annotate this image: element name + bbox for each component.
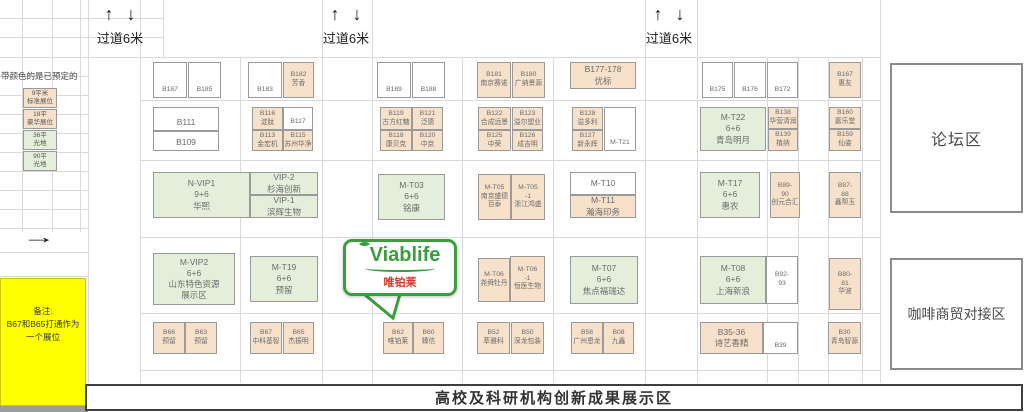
booth-n-vip1: N-VIP19+6华熙 <box>153 172 250 218</box>
booth-vip-2: VIP-2杉海创新 <box>250 172 318 195</box>
down-arrow-icon: ↓ <box>353 4 362 24</box>
booth-b126: B126成吉明 <box>512 130 543 151</box>
booth-b60: B60臻信 <box>413 322 444 354</box>
booth-b109: B109 <box>153 131 219 151</box>
legend-sample-2: 18平豪华展位 <box>23 109 57 129</box>
booth-b58: B58广州恩龙 <box>571 322 603 354</box>
aisle-label-2: ↑↓过道6米 <box>318 4 374 54</box>
right-arrow-glyph-icon: → <box>22 227 56 248</box>
booth-b180: B180广纳景源 <box>512 62 545 98</box>
booth-b121: B121泛德 <box>412 107 443 130</box>
down-arrow-icon: ↓ <box>676 4 685 24</box>
note-box: 备注:B67和B65打通作为一个展位 <box>0 278 86 406</box>
logo-brand-word: Viablife <box>370 245 441 265</box>
booth-b175: B175 <box>702 62 733 98</box>
logo-brand-text: Viablife <box>360 245 441 265</box>
booth-m-t11: M-T11瀚海印务 <box>570 195 636 218</box>
booth-b115: B115苏州华净 <box>283 130 313 151</box>
booth-b185: B185 <box>188 62 221 98</box>
booth-b52: B52萃雅科 <box>477 322 510 354</box>
booth-b08: B08九鑫 <box>603 322 634 354</box>
bottom-left-strip <box>0 406 88 412</box>
booth-b113: B113金宏机 <box>252 130 283 151</box>
booth-b125: B125中荣 <box>478 130 511 151</box>
booth-b160: B160嘉乐堂 <box>829 107 861 129</box>
booth-b67: B67中科基智 <box>250 322 282 354</box>
booth-b92-93: B92-93 <box>766 256 798 304</box>
booth-b122: B122合成远景 <box>478 107 511 130</box>
booth-m-vip2: M-VIP26+6山东特色资源展示区 <box>153 253 235 305</box>
booth-b139: B139植纳 <box>768 129 798 151</box>
aisle-label-text: 过道6米 <box>323 28 369 47</box>
booth-b138: B138华营清润 <box>768 107 798 129</box>
exhibition-floor-plan: 带颜色的是已预定的 9平米标准展位18平豪华展位36平光地90平光地 → 备注:… <box>0 0 1024 412</box>
booth-b187: B187 <box>153 62 187 98</box>
booth-b111: B111 <box>153 107 219 131</box>
bottom-banner-label: 高校及科研机构创新成果展示区 <box>435 387 673 408</box>
note-line: 一个展位 <box>1 331 85 344</box>
booth-b182: B182芳香 <box>283 62 314 98</box>
booth-b66: B66预留 <box>153 322 185 354</box>
booth-b35-36: B35-36诗艺香精 <box>700 322 763 354</box>
logo-chinese-name: 唯铂莱 <box>384 274 417 290</box>
booth-m-t08: M-T086+6上海新浪 <box>700 256 766 304</box>
up-arrow-icon: ↑ <box>105 4 114 24</box>
bottom-banner: 高校及科研机构创新成果展示区 <box>85 384 1023 411</box>
booth-b116: B116淀肽 <box>252 107 283 130</box>
booth-b118: B118康贝克 <box>380 130 412 151</box>
booth-m-t05-1: M-T05-1浙江鸿盛 <box>511 174 545 220</box>
booth-m-t10: M-T10 <box>570 172 636 195</box>
viablife-logo: Viablife 唯铂莱 <box>343 239 457 296</box>
booth-b80-81: B80-81华波 <box>829 258 861 310</box>
zone-forum-label: 论坛区 <box>931 126 982 150</box>
legend-header: 带颜色的是已预定的 <box>1 70 97 82</box>
booth-m-t03: M-T036+6铭康 <box>378 174 445 220</box>
zone-forum: 论坛区 <box>890 63 1023 213</box>
zone-coffee-label: 咖啡商贸对接区 <box>908 304 1006 324</box>
booth-vip-1: VIP-1滨辉生物 <box>250 195 318 218</box>
booth-b183: B183 <box>248 62 282 98</box>
aisle-label-text: 过道6米 <box>646 28 692 47</box>
booth-b189: B189 <box>377 62 411 98</box>
logo-pointer-tail <box>358 293 408 321</box>
booth-m-t22: M-T226+6青岛明月 <box>700 107 766 151</box>
aisle-label-3: ↑↓过道6米 <box>641 4 697 54</box>
booth-b172: B172 <box>767 62 798 98</box>
up-arrow-icon: ↑ <box>654 4 663 24</box>
booth-b181: B181南京赛诺 <box>477 62 511 98</box>
legend-sample-4: 90平光地 <box>23 151 57 171</box>
booth-b159: B159仙姿 <box>829 129 861 151</box>
aisle-label-text: 过道6米 <box>97 28 143 47</box>
leaf-icon <box>359 239 370 249</box>
booth-m-t06-1: M-T06-1恒医生物 <box>510 256 545 302</box>
booth-b119: B119古方红糖 <box>380 107 412 130</box>
booth-m-t05: M-T05南京盛德百泰 <box>478 174 511 220</box>
up-arrow-icon: ↑ <box>331 4 340 24</box>
booth-b123: B123溢尔塑业 <box>512 107 543 130</box>
logo-swoosh <box>365 265 435 272</box>
legend-sample-3: 36平光地 <box>23 130 57 150</box>
booth-b167: B167惠友 <box>829 62 861 98</box>
booth-b65: B65杰振明 <box>283 322 314 354</box>
booth-b87-88: B87-88鑫帮玉 <box>829 172 861 218</box>
legend-sample-1: 9平米标准展位 <box>23 88 57 108</box>
booth-m-t06: M-T06尧舜牡丹 <box>478 258 510 302</box>
booth-b89-90: B89-90创元合汇 <box>770 172 800 218</box>
booth-b128: B128溢多利 <box>572 107 603 130</box>
booth-b177-178: B177-178优标 <box>570 62 636 89</box>
booth-b50: B50深龙包装 <box>511 322 544 354</box>
booth-b30: B30青岛智源 <box>828 322 861 354</box>
booth-b176: B176 <box>734 62 766 98</box>
booth-b120: B120中京 <box>412 130 443 151</box>
booth-b39: B39 <box>763 322 798 354</box>
zone-coffee: 咖啡商贸对接区 <box>890 258 1023 370</box>
aisle-label-1: ↑↓过道6米 <box>92 4 148 54</box>
booth-b117: B117 <box>283 107 313 130</box>
booth-m-t21: M-T21 <box>604 107 636 151</box>
note-line: B67和B65打通作为 <box>1 318 85 331</box>
booth-b127: B127新永辉 <box>572 130 603 151</box>
down-arrow-icon: ↓ <box>127 4 136 24</box>
note-line: 备注: <box>1 305 85 318</box>
booth-b62: B62唯铂莱 <box>383 322 413 354</box>
booth-m-t19: M-T196+6预留 <box>250 256 318 302</box>
booth-m-t07: M-T076+6焦点福瑞达 <box>570 256 638 304</box>
booth-m-t17: M-T176+6惠农 <box>700 172 760 218</box>
booth-b63: B63预留 <box>185 322 217 354</box>
booth-b188: B188 <box>412 62 445 98</box>
